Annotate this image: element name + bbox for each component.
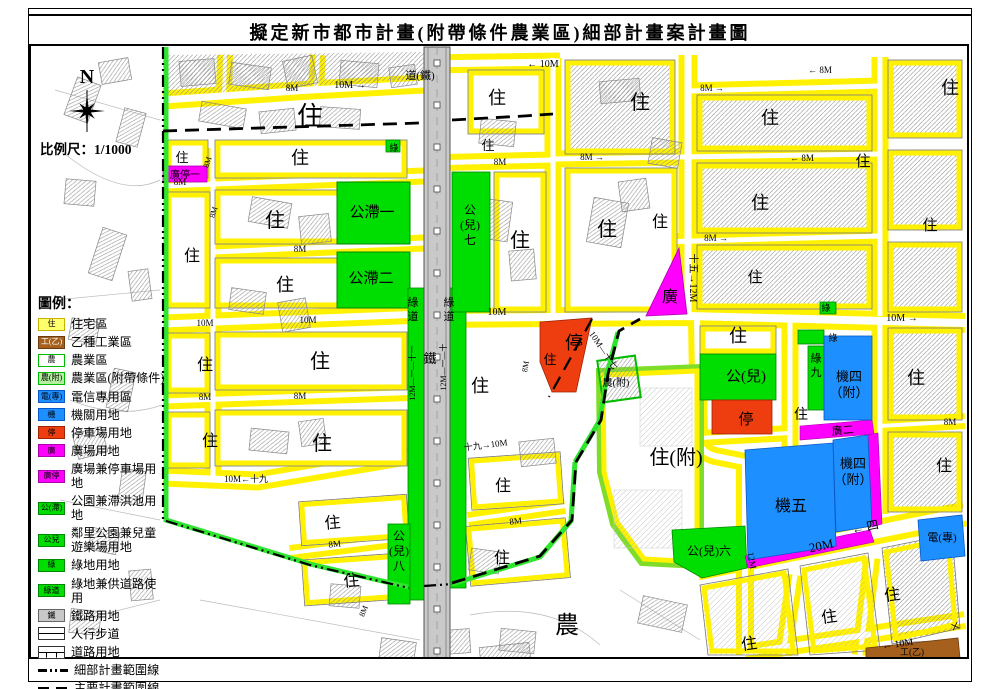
legend-swatch: 廣 <box>38 444 65 457</box>
legend-label: 細部計畫範圍線 <box>74 663 159 677</box>
map-label: 停 <box>738 411 753 428</box>
map-label: 住 <box>907 368 925 388</box>
map-label: 住 <box>265 209 285 232</box>
map-label: 住(附) <box>649 446 702 469</box>
map-label: 綠 <box>821 302 830 313</box>
legend-label: 公園兼滯洪池用地 <box>71 494 168 522</box>
zone-green-small-1 <box>798 330 824 344</box>
legend-item-0: 住住宅區 <box>38 317 168 331</box>
map-label: ← 8M <box>790 153 814 163</box>
legend-item-13: 鐵鐵路用地 <box>38 609 168 623</box>
building <box>519 438 556 467</box>
city-block <box>888 242 962 312</box>
map-label: 8M <box>199 392 212 402</box>
map-label: 鐵 <box>423 351 436 366</box>
map-label: 住 <box>324 513 342 532</box>
map-label: 住 <box>202 432 218 450</box>
legend-item-5: 機機關用地 <box>38 408 168 422</box>
legend-label: 乙種工業區 <box>71 335 132 349</box>
map-label: 住 <box>936 457 952 475</box>
map-label: 8M <box>494 157 507 167</box>
legend-line-dashdot-symbol <box>38 669 68 672</box>
map-label: ← 8M <box>808 65 832 75</box>
map-label: 住 <box>740 634 758 654</box>
map-label: 綠 <box>389 142 398 153</box>
map-label: 8M <box>944 417 957 427</box>
legend-label: 綠地用地 <box>71 558 120 572</box>
legend-label: 廣場兼停車場用地 <box>71 462 168 490</box>
map-label: 住 <box>820 607 838 627</box>
map-label: 10M <box>299 315 316 325</box>
map-label: 住 <box>343 571 361 590</box>
legend-item-17: 主要計畫範圍線 <box>38 681 168 689</box>
map-label: 住 <box>312 432 332 455</box>
map-label: 農 <box>555 612 579 639</box>
map-label: 住 <box>471 376 489 396</box>
legend-swatch: 公(滯) <box>38 502 65 515</box>
legend-swatch: 工(乙) <box>38 336 65 349</box>
legend-label: 電信專用區 <box>71 390 132 404</box>
map-label: 住 <box>488 88 506 108</box>
page-title: 擬定新市都市計畫(附帶條件農業區)細部計畫案計畫圖 <box>0 19 1000 45</box>
map-label: 住 <box>941 78 959 98</box>
map-label: 住 <box>276 275 294 295</box>
map-label: 住 <box>630 91 650 114</box>
map-label: 8M → <box>580 152 604 162</box>
map-label: 公滯二 <box>348 270 393 287</box>
map-label: 住 <box>922 217 937 234</box>
map-label: 停 <box>565 333 583 353</box>
building <box>648 138 682 169</box>
map-label: 住 <box>495 477 511 495</box>
north-label: N <box>62 66 112 89</box>
legend-item-16: 細部計畫範圍線 <box>38 663 168 677</box>
map-label: 公(兒) <box>726 368 766 385</box>
building <box>379 638 417 665</box>
plan-map-page: 擬定新市都市計畫(附帶條件農業區)細部計畫案計畫圖 <box>0 0 1000 689</box>
map-label: 十五→12M <box>687 254 700 303</box>
legend-item-4: 電(專)電信專用區 <box>38 390 168 404</box>
map-label: 農(附) <box>603 376 630 389</box>
legend-label: 鐵路用地 <box>71 609 120 623</box>
city-block <box>697 95 872 151</box>
city-block <box>697 163 872 233</box>
map-label: 住 <box>481 138 494 153</box>
building <box>618 178 650 212</box>
map-label: 10M <box>196 318 213 328</box>
map-label: 電(專) <box>927 531 957 544</box>
map-label: 8M → <box>700 83 724 93</box>
legend-swatch: 廣停 <box>38 470 65 483</box>
legend-label: 人行步道 <box>71 627 120 641</box>
map-label: 住 <box>197 356 213 374</box>
compass-icon <box>65 89 109 133</box>
legend-swatch: 機 <box>38 408 65 421</box>
top-rule <box>28 14 971 16</box>
legend-road-symbol <box>38 646 65 659</box>
map-label: 機五 <box>775 497 807 515</box>
building <box>299 214 332 245</box>
building <box>509 249 537 281</box>
map-label: 住 <box>794 407 808 423</box>
legend-label: 鄰里公園兼兒童 遊樂場用地 <box>71 526 156 554</box>
map-label: 住 <box>729 326 747 346</box>
city-block <box>215 140 407 178</box>
city-block <box>697 245 872 309</box>
map-label: 住 <box>751 193 769 213</box>
map-label: 8M <box>174 177 187 187</box>
building <box>249 428 289 454</box>
legend-item-6: 停停車場用地 <box>38 426 168 440</box>
map-label: 8M <box>328 538 341 549</box>
city-block <box>888 328 962 420</box>
legend-item-2: 農農業區 <box>38 353 168 367</box>
legend-swatch: 綠 <box>38 559 65 572</box>
legend-label: 綠地兼供道路使用 <box>71 577 168 605</box>
map-label: 住 <box>310 350 330 373</box>
legend-item-1: 工(乙)乙種工業區 <box>38 335 168 349</box>
legend-swatch: 農 <box>38 354 65 367</box>
map-label: 住 <box>510 229 530 252</box>
legend-swatch: 農(附) <box>38 372 65 385</box>
legend-swatch: 公兒 <box>38 534 65 547</box>
map-label: 公滯一 <box>349 204 394 221</box>
legend-item-8: 廣停廣場兼停車場用地 <box>38 462 168 490</box>
city-block <box>888 60 962 138</box>
legend: 圖例： 住住宅區工(乙)乙種工業區農農業區農(附)農業區(附帶條件)電(專)電信… <box>38 293 168 689</box>
map-label: 10M←十九 <box>224 473 268 484</box>
map-label: 住 <box>184 247 200 265</box>
map-label: 公(兒)六 <box>687 544 731 558</box>
map-label: 住 <box>761 108 779 128</box>
legend-item-11: 綠綠地用地 <box>38 558 168 572</box>
map-label: 12M—一—十一 <box>407 345 417 400</box>
legend-item-3: 農(附)農業區(附帶條件) <box>38 371 168 385</box>
map-label: 住 <box>494 549 510 567</box>
building <box>259 108 296 134</box>
map-label: 綠 <box>828 332 837 343</box>
legend-label: 主要計畫範圍線 <box>74 681 159 689</box>
legend-swatch: 住 <box>38 318 65 331</box>
legend-item-12: 綠道綠地兼供道路使用 <box>38 577 168 605</box>
map-label: 道(鐵) <box>405 68 435 82</box>
legend-list: 住住宅區工(乙)乙種工業區農農業區農(附)農業區(附帶條件)電(專)電信專用區機… <box>38 317 168 689</box>
map-label: ← 10M <box>527 59 559 70</box>
map-label: 8M <box>286 83 299 93</box>
map-label: 住 <box>855 153 870 170</box>
map-label: 10M → <box>886 313 917 324</box>
map-label: 住 <box>175 150 188 165</box>
map-label: 住 <box>747 269 762 286</box>
building <box>179 59 216 87</box>
legend-label: 機關用地 <box>71 408 120 422</box>
legend-item-10: 公兒鄰里公園兼兒童 遊樂場用地 <box>38 526 168 554</box>
legend-swatch: 電(專) <box>38 390 65 403</box>
legend-label: 廣場用地 <box>71 444 120 458</box>
legend-item-9: 公(滯)公園兼滯洪池用地 <box>38 494 168 522</box>
legend-label: 停車場用地 <box>71 426 132 440</box>
legend-heading: 圖例： <box>38 293 168 313</box>
legend-swatch: 鐵 <box>38 609 65 622</box>
north-indicator: N <box>62 66 112 138</box>
map-label: 8M <box>509 515 523 526</box>
legend-label: 農業區 <box>71 353 108 367</box>
map-label: 住 <box>883 585 901 605</box>
legend-item-14: 人行步道 <box>38 627 168 641</box>
legend-swatch: 停 <box>38 426 65 439</box>
map-label: 8M <box>294 391 307 401</box>
map-label: 8M → <box>704 233 728 243</box>
legend-swatch: 綠道 <box>38 584 65 597</box>
legend-label: 農業區(附帶條件) <box>71 371 164 385</box>
map-label: 8M <box>294 244 307 254</box>
map-label: 住 <box>652 213 668 231</box>
map-label: 8M <box>520 360 531 373</box>
map-label: 住 <box>543 352 556 367</box>
scale-label: 比例尺：1/1000 <box>40 138 132 158</box>
map-label: 10M → <box>334 80 365 91</box>
legend-item-15: 道路用地 <box>38 645 168 659</box>
map-label: 10M <box>488 307 507 318</box>
building <box>64 179 96 207</box>
map-label: 住 <box>291 148 309 168</box>
zone-greenway-right <box>450 288 466 588</box>
map-label: 12M—一—十 <box>438 343 448 390</box>
building <box>229 288 267 315</box>
map-label: 住 <box>297 102 323 131</box>
map-label: 廣 <box>662 288 678 306</box>
legend-sidewalk-symbol <box>38 627 65 640</box>
map-label: 住 <box>597 218 617 241</box>
legend-label: 住宅區 <box>71 317 108 331</box>
legend-item-7: 廣廣場用地 <box>38 444 168 458</box>
legend-label: 道路用地 <box>71 645 120 659</box>
